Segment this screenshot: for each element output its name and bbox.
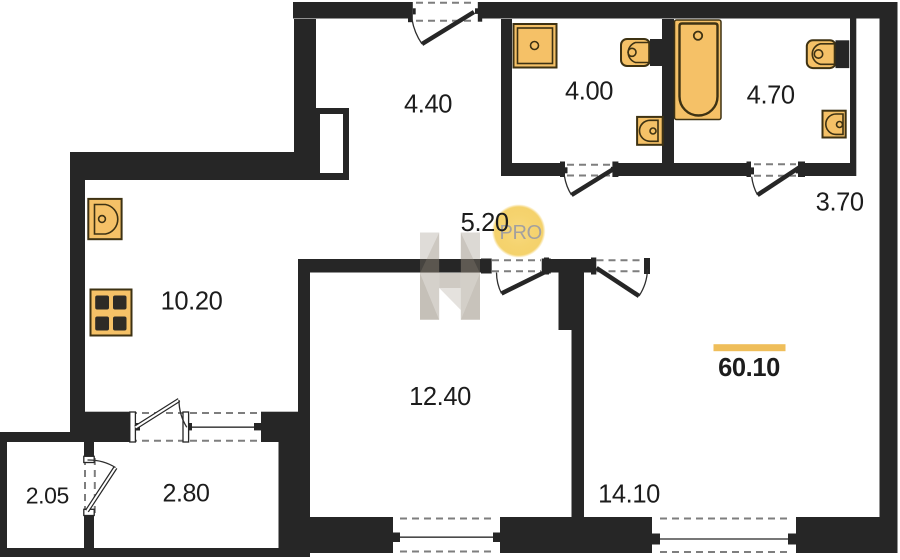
svg-text:10.20: 10.20 — [161, 287, 223, 315]
svg-text:12.40: 12.40 — [409, 383, 471, 411]
svg-text:3.70: 3.70 — [816, 189, 864, 217]
svg-text:60.10: 60.10 — [718, 354, 780, 382]
svg-text:2.05: 2.05 — [26, 483, 69, 509]
svg-text:4.40: 4.40 — [404, 91, 452, 119]
svg-text:4.70: 4.70 — [747, 82, 795, 110]
svg-text:5.20: 5.20 — [461, 209, 509, 237]
svg-text:2.80: 2.80 — [162, 480, 209, 508]
svg-text:4.00: 4.00 — [565, 78, 613, 106]
svg-text:14.10: 14.10 — [598, 481, 660, 509]
